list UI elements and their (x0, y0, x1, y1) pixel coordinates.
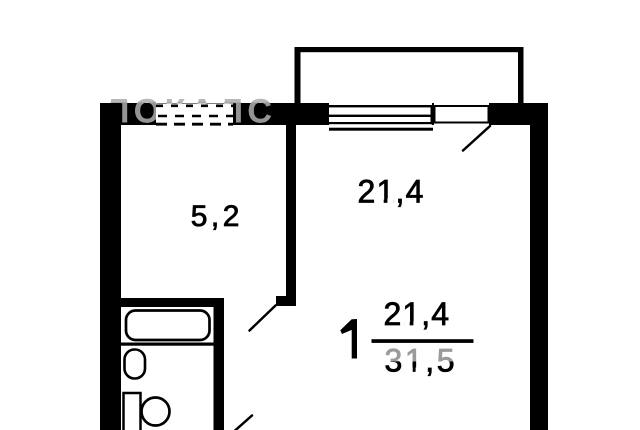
svg-text:31,5: 31,5 (385, 342, 458, 378)
svg-text:5,2: 5,2 (191, 200, 243, 233)
svg-text:21,4: 21,4 (358, 173, 425, 209)
svg-text:21,4: 21,4 (384, 296, 451, 332)
